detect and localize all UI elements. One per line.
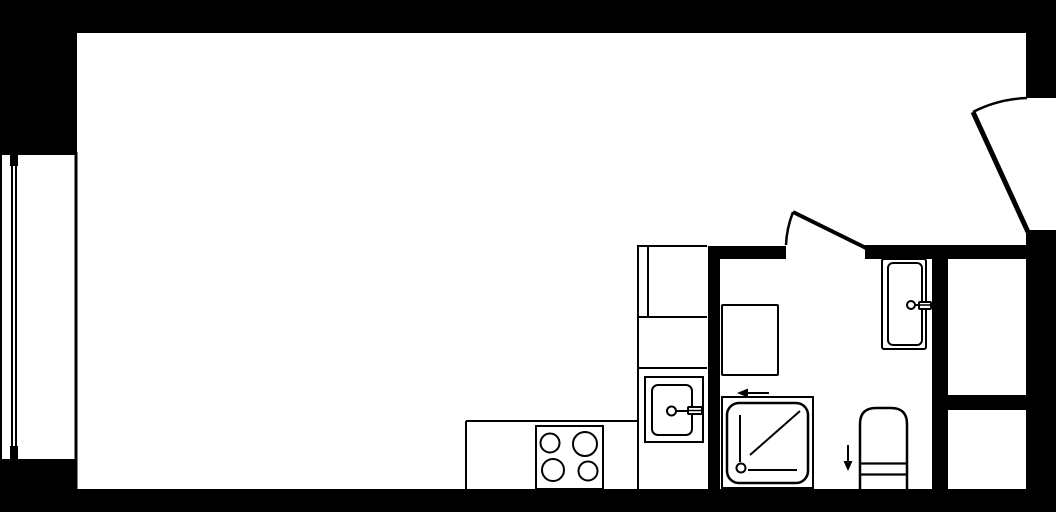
stove-burner-bottom-left	[542, 459, 564, 481]
right-wall-below-entry-door	[1026, 230, 1056, 512]
stove-burner-bottom-right	[579, 462, 598, 481]
left-wall-upper	[0, 0, 77, 155]
kitchen-bathroom-partition	[708, 246, 720, 489]
bathroom-storage-partition	[932, 246, 948, 489]
kitchen-faucet-base	[667, 407, 676, 416]
top-wall	[0, 0, 1056, 33]
stove-burner-top-left	[541, 434, 560, 453]
shower-drain	[737, 464, 746, 473]
washing-machine	[722, 305, 778, 375]
left-wall-lower	[0, 459, 77, 512]
toilet-body	[860, 408, 907, 489]
storage-rooms-divider	[947, 395, 1026, 410]
floor-plan	[0, 0, 1056, 512]
right-wall-above-entry-door	[1026, 0, 1056, 98]
floor-plan-canvas	[0, 0, 1056, 512]
stove-burner-top-right	[573, 432, 597, 456]
bottom-wall	[75, 489, 1056, 512]
bathroom-faucet-base	[907, 301, 915, 309]
